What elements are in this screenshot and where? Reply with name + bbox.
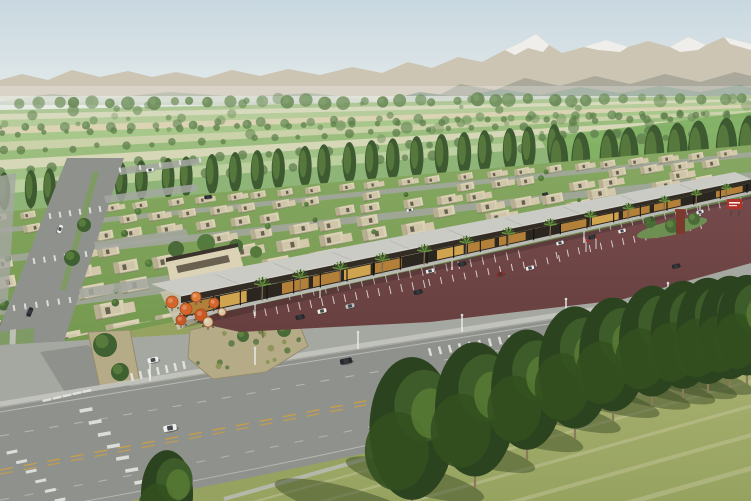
palm-trunk [664,202,665,212]
distant-tree [387,112,394,119]
hedgerow-tree [265,151,272,158]
distant-tree [153,123,157,127]
distant-tree [38,124,42,128]
umbrella-highlight [182,305,187,310]
poplar-tree [479,135,487,164]
poplar-tree [366,144,373,172]
distant-tree [428,99,432,103]
distant-tree [76,121,81,126]
hedgerow-tree [485,116,491,122]
distant-tree [566,96,573,103]
hedgerow-tree [538,134,546,142]
distant-tree [243,97,249,103]
distant-tree [676,94,682,100]
distant-tree [257,97,263,103]
hedgerow-tree [590,129,599,138]
hedgerow-tree [525,115,532,122]
hedgerow-tree [168,138,175,145]
hedgerow-tree [69,146,76,153]
poplar-tree [273,152,280,179]
distant-tree [738,94,743,99]
palm-trunk [300,278,301,292]
palm-trunk [262,285,263,300]
distant-tree [171,98,176,103]
palm-trunk [508,234,509,246]
hedgerow-tree [198,138,206,146]
distant-tree [300,95,307,102]
umbrella-highlight [219,309,222,312]
poplar-tree [504,132,512,161]
distant-tree [459,105,464,110]
hedgerow-tree [213,124,220,131]
distant-tree [1,120,8,127]
distant-tree [697,95,703,101]
lot-tree [689,214,695,220]
distant-tree [599,95,605,101]
anchor-tree [250,246,262,258]
hedgerow-tree [375,121,381,127]
distant-tree [227,109,236,118]
island-shrub [266,360,270,364]
red-sign-text [729,205,737,206]
hedgerow-tree [155,128,159,132]
distant-tree [416,95,422,101]
distant-tree [61,123,66,128]
poplar-tree [344,146,351,174]
distant-tree [128,124,133,129]
distant-tree [394,95,401,102]
distant-tree [524,94,530,100]
median-tree [66,251,75,260]
island-shrub [228,340,234,346]
hedgerow-tree [197,125,204,132]
distant-tree [571,103,575,107]
distant-tree [113,105,120,112]
palm-frond [697,194,702,195]
distant-tree [721,95,727,101]
island-shrub [222,331,227,336]
median-tree [95,335,108,348]
yard-tree [170,325,174,329]
distant-tree [189,122,194,127]
yard-tree [169,324,177,332]
distant-tree [335,120,346,131]
hedgerow-tree [492,123,499,130]
distant-tree [111,113,118,120]
yard-tree [372,230,375,233]
median-tree [113,364,123,374]
hedgerow-tree [221,139,226,144]
hedgerow-tree [264,123,271,130]
scene-canvas [0,0,751,501]
patio-chair [194,319,196,321]
distant-tree [33,98,40,105]
distant-tree [331,117,335,121]
yard-tree [544,170,546,172]
hedgerow-tree [592,118,598,124]
distant-tree [243,121,248,126]
patio-chair [212,326,214,328]
distant-tree [378,97,384,103]
palm-trunk [340,269,341,283]
yard-tree [146,260,150,264]
hedgerow-tree [642,115,650,123]
hedgerow-tree [426,142,433,149]
island-shrub [282,340,287,345]
distant-tree [203,98,209,104]
hedgerow-tree [543,116,550,123]
distant-tree [508,115,512,119]
distant-tree [575,105,582,112]
yard-tree [577,199,579,201]
hedgerow-tree [234,123,240,129]
distant-tree [476,113,481,118]
yard-tree [313,218,316,221]
distant-tree [586,113,590,117]
distant-tree [27,110,37,120]
distant-tree [608,111,613,116]
island-shrub [196,361,200,365]
distant-tree [186,98,190,102]
distant-tree [216,115,226,125]
hedgerow-tree [660,112,667,119]
distant-tree [225,97,232,104]
yard-tree [265,224,268,227]
lot-tree [667,221,674,228]
hedgerow-tree [419,120,426,127]
island-shrub [216,363,222,369]
hedgerow-tree [289,163,298,172]
palm-trunk [550,225,551,236]
umbrella-highlight [178,317,182,321]
hedgerow-tree [345,129,354,138]
distant-tree [319,98,326,105]
hedgerow-tree [446,126,451,131]
street-light-head [254,347,257,350]
distant-tree [556,114,567,125]
distant-tree [619,95,624,100]
distant-tree [173,120,178,125]
distant-tree [83,122,87,126]
hedgerow-tree [667,116,673,122]
car-glass [206,195,210,198]
hedgerow-tree [368,129,374,135]
island-shrub [273,358,277,362]
palm-frond [727,188,732,189]
hedgerow-tree [301,122,307,128]
distant-tree [337,98,345,106]
street-light-head [357,331,360,334]
monument-sign [676,210,685,234]
distant-tree [317,124,323,130]
distant-tree [133,106,143,116]
distant-tree [22,124,26,128]
distant-tree [257,118,262,123]
house-wing [91,266,102,276]
distant-tree [401,122,413,134]
hedgerow-tree [438,119,445,126]
poplar-tree [318,148,325,176]
hedgerow-tree [626,116,633,123]
distant-tree [495,106,503,114]
distant-tree [454,98,458,102]
palm-trunk [466,243,467,255]
island-shrub [261,331,267,337]
street-light-head [667,282,670,285]
median-tree [78,219,86,227]
distant-tree [360,101,364,105]
distant-tree [68,100,74,106]
distant-tree [307,119,312,124]
hedgerow-tree [87,128,94,135]
distant-tree [490,95,497,102]
palm-trunk [590,217,591,228]
red-sign-text [729,202,740,204]
distant-tree [272,93,283,104]
hedgerow-tree [43,147,48,152]
distant-tree [107,123,112,128]
distant-tree [89,116,97,124]
distant-tree [377,134,386,143]
distant-tree [166,127,171,132]
poplar-tree [387,142,395,170]
hedgerow-tree [15,132,21,138]
poplar-tree [523,131,531,160]
house-wing [299,238,310,248]
poplar-tree [411,140,419,168]
palm-trunk [382,260,383,273]
hedgerow-tree [392,129,400,137]
hedgerow-tree [395,120,401,126]
hedgerow-tree [402,154,409,161]
hedgerow-tree [692,112,699,119]
patio-chair [165,306,167,308]
distant-tree [639,94,643,98]
distant-tree [122,98,129,105]
yard-tree [305,202,307,204]
poplar-tree [252,154,259,181]
street-light-head [565,298,568,301]
distant-tree [659,95,663,99]
distant-tree [126,116,131,121]
yard-tree [122,231,126,235]
umbrella-highlight [197,311,202,316]
anchor-tree [168,241,184,257]
hedgerow-tree [122,141,130,149]
distant-tree [15,100,21,106]
poplar-tree [230,156,237,183]
umbrella-highlight [168,298,173,303]
hedgerow-tree [330,121,336,127]
distant-tree [554,101,560,107]
patio-chair [202,325,204,327]
poplar-tree [26,174,33,199]
street-light-head [461,314,464,317]
patio-chair [208,306,210,308]
distant-tree [377,116,381,120]
yard-tree [539,176,542,179]
island-shrub [284,347,290,353]
yard-tree [135,209,138,212]
hedgerow-tree [149,142,154,147]
poplar-tree [436,138,444,167]
hedgerow-tree [295,135,300,140]
hedgerow-tree [501,116,507,122]
yard-tree [404,193,406,195]
poplar-tree [299,150,306,177]
hedgerow-tree [110,127,117,134]
patio-chair [190,300,192,302]
patio-chair [225,315,227,317]
patio-chair [185,324,187,326]
distant-tree [239,100,244,105]
distant-tree [106,99,111,104]
distant-tree [177,113,186,122]
hedgerow-tree [321,133,327,139]
umbrella-highlight [193,294,197,298]
hedgerow-tree [615,112,623,120]
patio-chair [179,313,181,315]
poplar-tree [458,136,466,165]
palm-trunk [628,209,629,219]
hedgerow-tree [663,135,669,141]
red-sign [727,199,742,209]
patio-chair [191,314,193,316]
hedgerow-tree [41,130,46,135]
palm-frond [665,200,670,201]
house-wing [122,301,136,314]
hedgerow-tree [426,127,431,132]
umbrella-highlight [205,319,209,323]
distant-tree [281,120,286,125]
poplar-tree [44,172,51,197]
hedgerow-tree [64,129,69,134]
distant-tree [728,94,738,104]
palm-trunk [726,189,727,198]
poplar-tree [206,158,213,185]
island-shrub [296,338,301,343]
patio-chair [177,307,179,309]
aerial-rendering [0,0,751,501]
house-wing [342,233,353,243]
patio-chair [217,314,219,316]
hedgerow-tree [348,121,355,128]
hedgerow-tree [17,146,26,155]
distant-tree [144,101,151,108]
distant-tree [467,96,474,103]
yard-tree [112,300,116,304]
hedgerow-tree [176,125,184,133]
hedgerow-tree [676,111,684,119]
island-shrub [253,339,259,345]
distant-tree [414,115,419,120]
palm-trunk [424,252,425,265]
foreground-tree-highlight [166,469,189,500]
hedgerow-tree [271,134,278,141]
hedgerow-tree [468,125,474,131]
car-glass [148,168,152,171]
hedgerow-tree [94,142,100,148]
hedgerow-tree [286,123,292,129]
patio-chair [200,301,202,303]
distant-tree [581,96,587,102]
umbrella-highlight [211,300,215,304]
distant-tree [68,105,79,116]
island-shrub [268,345,275,352]
distant-tree [503,94,511,102]
hedgerow-tree [455,116,461,122]
distant-tree [86,97,93,104]
hedgerow-tree [251,135,258,142]
island-shrub [225,365,229,369]
hedgerow-tree [701,111,706,116]
hedgerow-tree [569,118,577,126]
palm-trunk [696,195,697,204]
distant-tree [166,115,172,121]
hedgerow-tree [127,128,133,134]
distant-tree [553,113,556,116]
patio-chair [175,323,177,325]
distant-tree [55,98,61,104]
